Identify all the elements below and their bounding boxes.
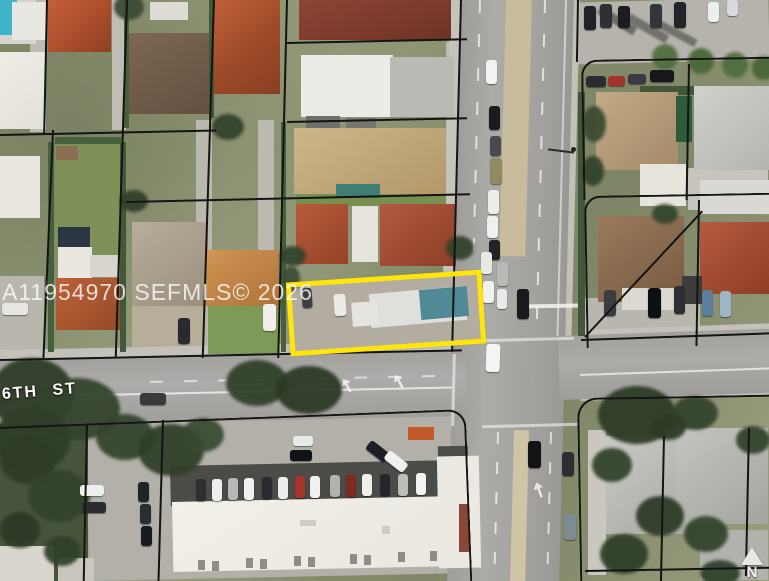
hedge [55,137,121,144]
car [517,289,529,319]
car [618,6,630,28]
car [488,190,499,214]
house-roof [48,0,111,52]
north-arrow: N [739,547,765,580]
car [490,158,502,184]
car [481,252,492,274]
car [489,106,500,130]
tree-canopy [280,246,306,266]
car [564,514,576,540]
north-arrow-icon [741,547,763,565]
highlighted-parcel-outline [286,270,486,357]
house-roof [301,55,393,117]
mls-watermark: A11954970 SEFMLS© 2026 [2,279,313,306]
car [486,344,501,372]
north-arrow-label: N [739,565,765,580]
car [497,289,507,309]
car [708,2,719,22]
house-roof [0,52,46,129]
house-roof [150,2,188,20]
house-roof [126,33,211,114]
car [178,318,190,344]
house-roof [12,2,47,40]
house-roof [380,204,456,266]
tree-canopy [446,236,474,260]
aerial-map-photo: A11954970 SEFMLS© 2026 6TH ST N [0,0,769,581]
house-roof [299,0,451,40]
car [486,60,497,84]
house-roof [390,57,454,117]
parcel-border [581,57,769,200]
car [600,4,612,28]
car [650,4,662,28]
house-roof [352,206,378,262]
car [562,452,574,476]
shed-roof [56,146,78,160]
car [487,216,498,238]
house-roof [0,156,40,218]
parcel-border [584,193,769,348]
car [674,2,686,28]
car [263,304,276,331]
car [497,262,508,286]
parcel-border [0,409,472,581]
car [490,136,501,156]
car [727,0,738,16]
car [140,393,166,405]
house-roof [58,227,90,249]
car [483,281,494,303]
house-roof [212,0,280,94]
car [584,6,596,30]
tree-canopy [212,114,244,140]
pole-lamp [571,147,576,152]
house-roof [90,255,118,277]
tree-canopy [276,366,342,414]
car [528,441,541,468]
house-roof [58,247,92,279]
